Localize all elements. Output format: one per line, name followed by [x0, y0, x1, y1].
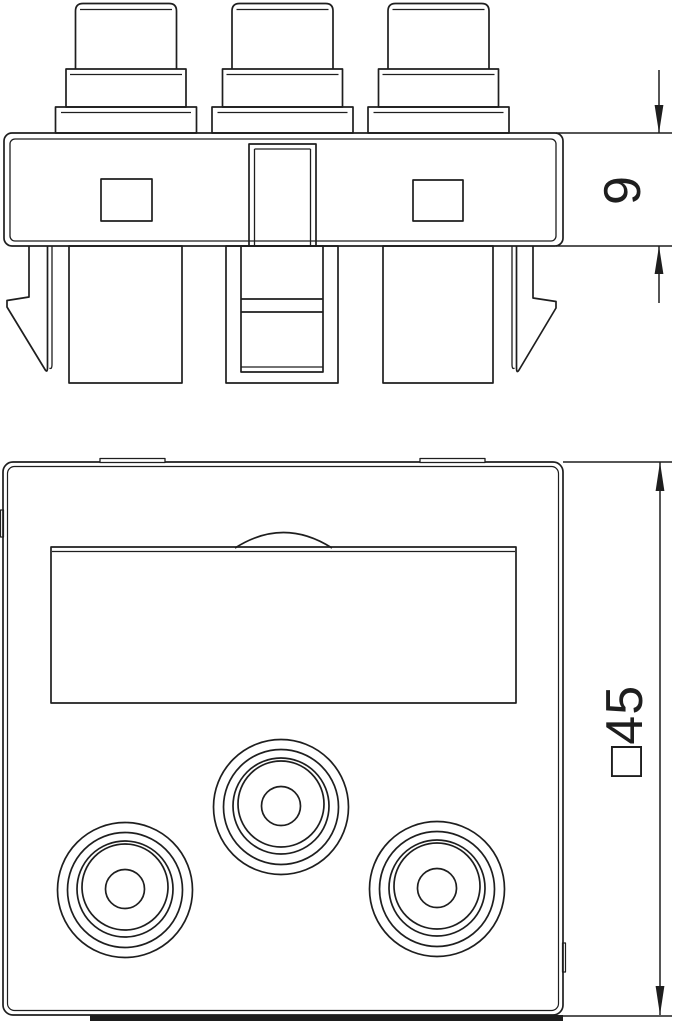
plug-bottom-tier	[56, 107, 197, 133]
plug-top-tier	[76, 4, 177, 70]
arrow-up-icon	[656, 462, 665, 491]
connector-plug-2	[212, 4, 353, 134]
connector-plug-1	[56, 4, 197, 134]
plug-bottom-tier	[368, 107, 509, 133]
snap-hook-left	[7, 246, 52, 371]
center-slot	[249, 144, 316, 246]
rca-ring	[389, 840, 485, 936]
rca-ring	[82, 844, 168, 930]
rca-center-pin-hole	[106, 870, 145, 909]
fixing-square-left	[101, 179, 152, 221]
rca-ring	[394, 843, 480, 929]
dimension-drawing-canvas: 9 □45	[0, 0, 674, 1024]
plate-notch-left	[1, 510, 4, 537]
leg-center-outer	[226, 246, 338, 383]
snap-hook-left-outline	[7, 246, 48, 371]
label-field-frame	[51, 547, 516, 703]
connector-plug-3	[368, 4, 509, 134]
side-view	[4, 4, 563, 384]
rca-ring	[77, 841, 173, 937]
plug-top-tier	[232, 4, 333, 70]
center-slot-outer	[249, 144, 316, 246]
snap-hook-right	[512, 246, 556, 372]
fixing-square-right	[413, 180, 463, 221]
rca-center-pin-hole	[418, 869, 457, 908]
mounting-frame	[4, 133, 563, 246]
leg-center-inner	[241, 246, 323, 372]
plate-notch-right	[563, 943, 566, 972]
rca-socket-top	[214, 740, 349, 875]
frame-outer	[4, 133, 563, 246]
snap-hook-right-outline	[517, 246, 557, 372]
mounting-legs	[7, 246, 556, 383]
dimension-label-9: 9	[597, 175, 649, 205]
arrow-down-icon	[655, 105, 664, 133]
snap-hook-right-edge	[512, 246, 515, 369]
arrow-up-icon	[655, 246, 664, 274]
plug-bottom-tier	[212, 107, 353, 133]
plate-inner	[8, 467, 559, 1011]
rca-center-pin-hole	[262, 787, 301, 826]
rca-socket-right	[370, 822, 505, 957]
frame-inner	[10, 139, 556, 241]
plate-tab-top-left	[100, 459, 165, 463]
plug-top-tier	[388, 4, 489, 70]
label-field	[51, 533, 516, 704]
rca-ring	[238, 761, 324, 847]
front-view	[1, 459, 566, 1022]
dimension-label-45: □45	[599, 685, 651, 777]
plate-tab-top-right	[420, 459, 485, 463]
leg-right	[383, 246, 493, 383]
plate-bottom-edge	[90, 1015, 563, 1021]
leg-center	[226, 246, 338, 383]
rca-socket-left	[58, 823, 193, 958]
thumb-recess-arc	[235, 533, 332, 549]
arrow-down-icon	[656, 986, 665, 1015]
snap-hook-left-edge	[50, 246, 53, 369]
technical-drawing	[0, 0, 674, 1024]
leg-left	[69, 246, 182, 383]
rca-ring	[233, 758, 329, 854]
